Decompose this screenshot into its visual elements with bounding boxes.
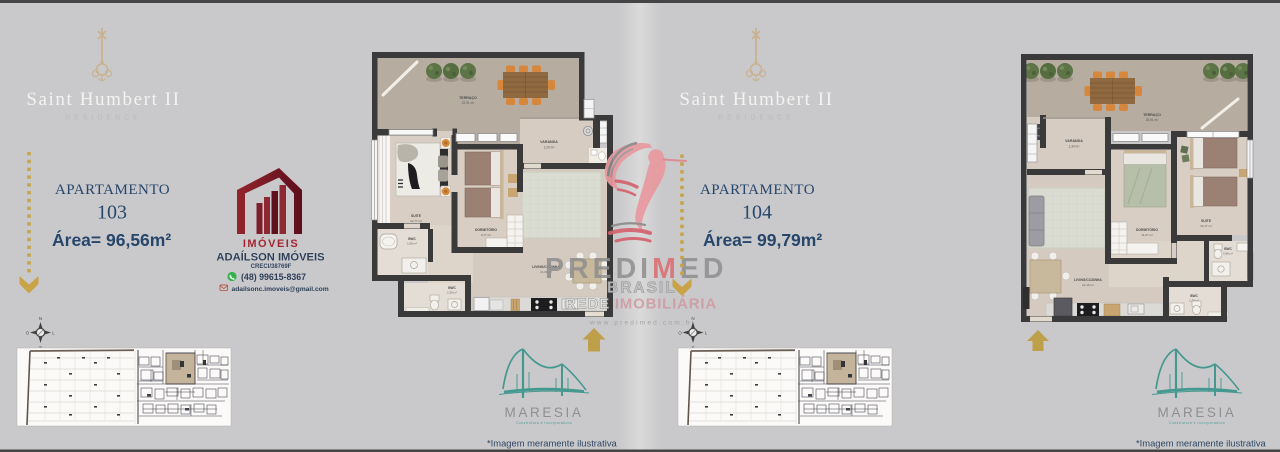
svg-text:N: N (691, 316, 694, 321)
svg-text:VARANDA: VARANDA (1065, 139, 1083, 143)
svg-text:26,91 m²: 26,91 m² (1146, 118, 1159, 122)
svg-text:O: O (26, 330, 30, 335)
svg-text:SUITE: SUITE (411, 214, 422, 218)
svg-text:Área= 96,56m²: Área= 96,56m² (52, 229, 171, 250)
svg-text:1,39 m²: 1,39 m² (447, 291, 457, 295)
svg-text:www.predimed.com.br: www.predimed.com.br (589, 320, 696, 327)
svg-text:N: N (39, 316, 42, 321)
svg-text:*Imagem meramente ilustrativa: *Imagem meramente ilustrativa (487, 438, 618, 449)
svg-text:1,20 m²: 1,20 m² (544, 146, 555, 150)
svg-text:(48) 99615-8367: (48) 99615-8367 (241, 272, 306, 282)
svg-text:9,77 m²: 9,77 m² (481, 233, 491, 237)
svg-text:BWC: BWC (1224, 247, 1232, 251)
svg-text:21,16 m²: 21,16 m² (1082, 283, 1094, 287)
svg-text:1,90 m²: 1,90 m² (407, 242, 417, 246)
svg-text:O: O (678, 330, 682, 335)
svg-text:*Imagem meramente ilustrativa: *Imagem meramente ilustrativa (1136, 438, 1267, 449)
svg-text:RESIDENCE: RESIDENCE (65, 115, 142, 122)
svg-text:CRECI/38769F: CRECI/38769F (251, 264, 292, 270)
svg-text:IMÓVEIS: IMÓVEIS (243, 237, 299, 250)
svg-text:Saint Humbert II: Saint Humbert II (679, 89, 833, 110)
svg-text:APARTAMENTO: APARTAMENTO (55, 182, 170, 198)
svg-text:REDE IMOBILIÁRIA: REDE IMOBILIÁRIA (565, 296, 717, 313)
svg-text:BWC: BWC (1190, 294, 1198, 298)
svg-text:DORMITÓRIO: DORMITÓRIO (475, 227, 497, 232)
svg-text:APARTAMENTO: APARTAMENTO (700, 182, 815, 198)
svg-text:SUITE: SUITE (1201, 219, 1212, 223)
svg-text:12,77 m²: 12,77 m² (410, 219, 422, 223)
svg-text:TERRAÇO: TERRAÇO (1143, 113, 1161, 117)
svg-text:BWC: BWC (408, 237, 416, 241)
svg-text:Saint Humbert II: Saint Humbert II (26, 89, 180, 110)
svg-text:BWC: BWC (448, 286, 456, 290)
svg-text:1,96 m²: 1,96 m² (1223, 252, 1233, 256)
svg-text:103: 103 (97, 202, 127, 224)
svg-text:104: 104 (742, 202, 772, 224)
svg-text:RESIDENCE: RESIDENCE (718, 115, 795, 122)
svg-text:1,34 m²: 1,34 m² (1069, 145, 1080, 149)
svg-text:VARANDA: VARANDA (540, 140, 558, 144)
svg-text:TERRAÇO: TERRAÇO (459, 96, 477, 100)
svg-text:LIVING/COZINHA: LIVING/COZINHA (1074, 278, 1102, 282)
svg-text:adailsonc.imoveis@gmail.com: adailsonc.imoveis@gmail.com (232, 286, 329, 293)
svg-text:11,07 m²: 11,07 m² (1141, 233, 1153, 237)
svg-text:Área= 99,79m²: Área= 99,79m² (703, 229, 822, 250)
svg-text:BRASIL: BRASIL (607, 280, 677, 297)
svg-text:22,91 m²: 22,91 m² (462, 101, 475, 105)
svg-text:DORMITÓRIO: DORMITÓRIO (1136, 227, 1158, 232)
svg-text:12,17 m²: 12,17 m² (1200, 224, 1212, 228)
svg-text:ADAÍLSON IMÓVEIS: ADAÍLSON IMÓVEIS (216, 251, 325, 264)
